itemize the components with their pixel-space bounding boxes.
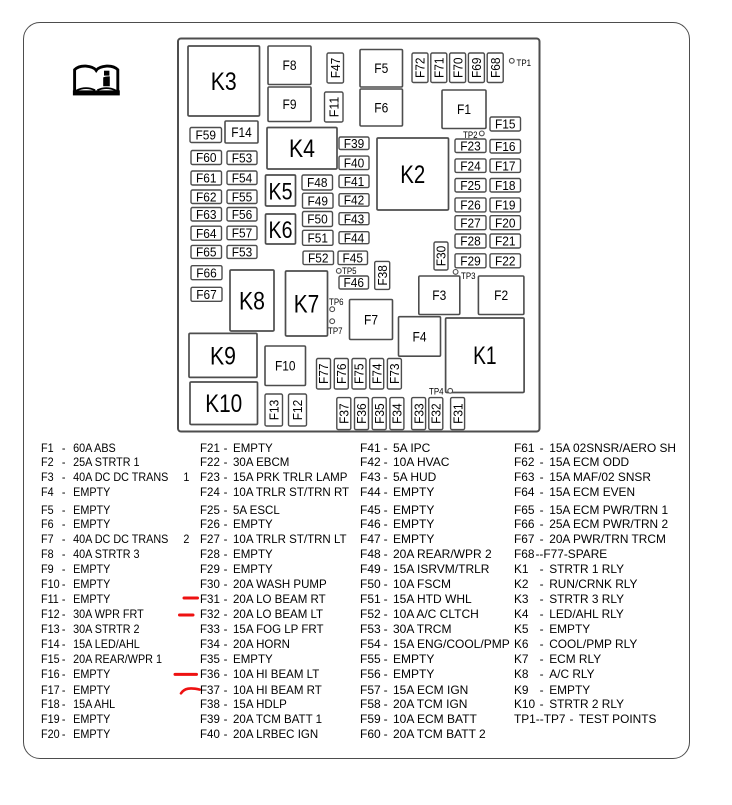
svg-text:F10: F10 xyxy=(275,359,296,374)
svg-text:F39: F39 xyxy=(344,136,365,151)
svg-text:TP6: TP6 xyxy=(329,297,344,307)
svg-text:TP2: TP2 xyxy=(463,130,478,140)
svg-text:F33: F33 xyxy=(411,403,426,424)
svg-text:K5: K5 xyxy=(269,178,293,205)
svg-text:F73: F73 xyxy=(387,364,402,385)
svg-text:F46: F46 xyxy=(344,275,365,290)
svg-text:K4: K4 xyxy=(289,135,315,163)
svg-text:F14: F14 xyxy=(231,125,252,140)
svg-text:F25: F25 xyxy=(460,178,481,193)
svg-text:F52: F52 xyxy=(308,251,329,266)
svg-text:F30: F30 xyxy=(434,246,449,267)
svg-text:K7: K7 xyxy=(294,291,320,319)
svg-text:F2: F2 xyxy=(494,288,508,303)
svg-text:F38: F38 xyxy=(375,265,390,286)
svg-text:F20: F20 xyxy=(495,215,516,230)
svg-text:TP5: TP5 xyxy=(342,266,357,276)
svg-text:F55: F55 xyxy=(232,189,253,204)
svg-text:F45: F45 xyxy=(343,251,364,266)
svg-text:F41: F41 xyxy=(344,174,365,189)
svg-text:TP3: TP3 xyxy=(461,271,476,281)
svg-text:K2: K2 xyxy=(400,161,425,189)
svg-text:F31: F31 xyxy=(450,403,465,424)
svg-text:TP4: TP4 xyxy=(429,386,444,396)
svg-text:F57: F57 xyxy=(232,226,253,241)
svg-text:F76: F76 xyxy=(334,364,349,385)
svg-text:F64: F64 xyxy=(196,226,217,241)
svg-text:F63: F63 xyxy=(196,207,217,222)
svg-text:F4: F4 xyxy=(413,329,427,344)
svg-text:F71: F71 xyxy=(431,58,446,79)
svg-text:F9: F9 xyxy=(283,97,297,112)
svg-text:F37: F37 xyxy=(336,403,351,424)
svg-text:F35: F35 xyxy=(372,403,387,424)
svg-text:F56: F56 xyxy=(232,207,253,222)
svg-text:F61: F61 xyxy=(196,171,217,186)
svg-text:F40: F40 xyxy=(344,156,365,171)
svg-text:F27: F27 xyxy=(460,215,481,230)
svg-text:F19: F19 xyxy=(495,198,516,213)
svg-text:F21: F21 xyxy=(495,234,516,249)
svg-text:F32: F32 xyxy=(428,403,443,424)
svg-text:F8: F8 xyxy=(283,58,297,73)
svg-text:F72: F72 xyxy=(413,58,428,79)
svg-text:F51: F51 xyxy=(308,231,329,246)
svg-text:F70: F70 xyxy=(450,58,465,79)
svg-text:F28: F28 xyxy=(460,234,481,249)
svg-text:K3: K3 xyxy=(211,68,237,96)
svg-text:F12: F12 xyxy=(290,400,305,421)
svg-text:F53: F53 xyxy=(232,150,253,165)
svg-text:F1: F1 xyxy=(457,102,471,117)
svg-text:K8: K8 xyxy=(239,288,265,316)
svg-text:F42: F42 xyxy=(344,193,365,208)
svg-text:F15: F15 xyxy=(495,117,516,132)
svg-text:F44: F44 xyxy=(344,230,365,245)
svg-text:F23: F23 xyxy=(460,138,481,153)
svg-text:F74: F74 xyxy=(369,364,384,385)
svg-text:F54: F54 xyxy=(232,170,253,185)
svg-text:F62: F62 xyxy=(196,189,217,204)
svg-text:F49: F49 xyxy=(308,193,329,208)
svg-text:K10: K10 xyxy=(205,390,242,418)
svg-text:F66: F66 xyxy=(196,265,217,280)
svg-text:F36: F36 xyxy=(354,403,369,424)
svg-text:F67: F67 xyxy=(196,287,217,302)
svg-text:F43: F43 xyxy=(344,211,365,226)
svg-text:F68: F68 xyxy=(488,58,503,79)
svg-text:F50: F50 xyxy=(307,212,328,227)
svg-text:F24: F24 xyxy=(460,158,481,173)
svg-text:F17: F17 xyxy=(495,158,516,173)
svg-text:F60: F60 xyxy=(196,150,217,165)
svg-text:F11: F11 xyxy=(326,97,341,118)
svg-text:F34: F34 xyxy=(390,403,405,424)
svg-text:F29: F29 xyxy=(460,254,481,269)
svg-text:F5: F5 xyxy=(374,61,388,76)
svg-text:F53: F53 xyxy=(232,245,253,260)
svg-text:F69: F69 xyxy=(469,58,484,79)
svg-text:F18: F18 xyxy=(495,178,516,193)
svg-text:F65: F65 xyxy=(196,245,217,260)
svg-text:F77: F77 xyxy=(316,364,331,385)
svg-text:F59: F59 xyxy=(196,128,217,143)
svg-text:TP7: TP7 xyxy=(328,326,343,336)
svg-text:F16: F16 xyxy=(495,139,516,154)
svg-text:K9: K9 xyxy=(210,342,236,370)
svg-text:F3: F3 xyxy=(432,288,446,303)
svg-text:F75: F75 xyxy=(352,364,367,385)
svg-text:F47: F47 xyxy=(328,58,343,79)
svg-text:F22: F22 xyxy=(495,254,516,269)
svg-text:F13: F13 xyxy=(266,400,281,421)
svg-text:F6: F6 xyxy=(374,100,388,115)
svg-text:F7: F7 xyxy=(364,312,378,327)
svg-text:K1: K1 xyxy=(473,342,497,370)
svg-text:F48: F48 xyxy=(307,175,328,190)
svg-text:TP1: TP1 xyxy=(517,58,532,68)
svg-text:F26: F26 xyxy=(460,198,481,213)
svg-text:K6: K6 xyxy=(269,217,293,244)
